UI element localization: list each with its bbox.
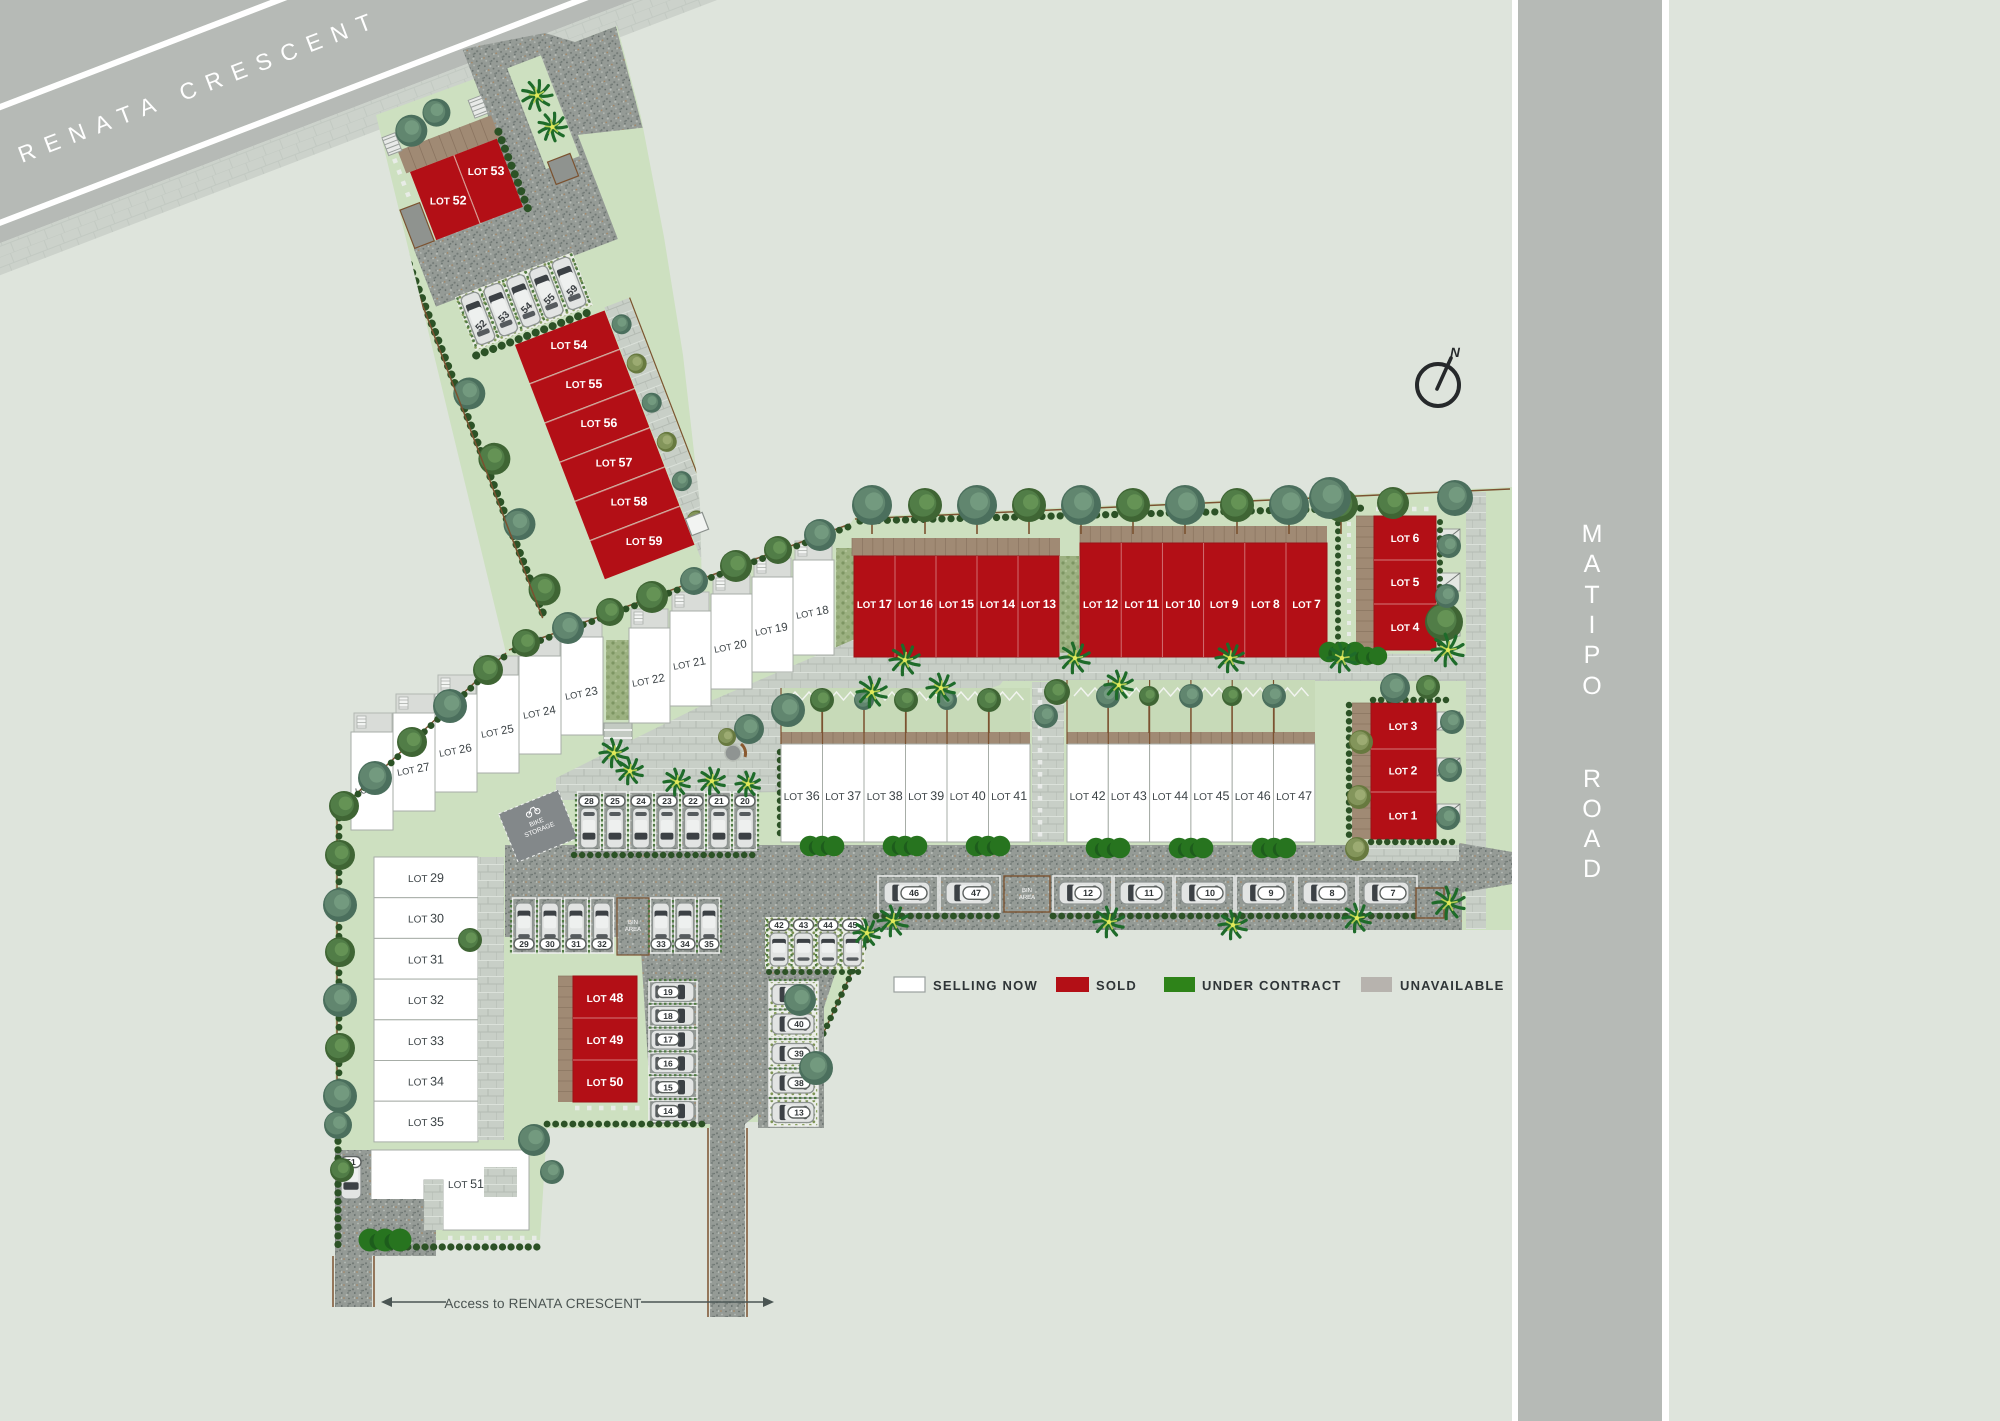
svg-text:LOT 46: LOT 46 <box>1235 789 1271 803</box>
svg-text:LOT 5: LOT 5 <box>1391 575 1420 589</box>
svg-text:LOT 32: LOT 32 <box>408 993 444 1007</box>
svg-text:19: 19 <box>663 987 673 997</box>
svg-text:21: 21 <box>714 796 724 806</box>
svg-text:LOT 54: LOT 54 <box>551 338 588 352</box>
svg-text:LOT 12: LOT 12 <box>1083 597 1119 611</box>
svg-text:T: T <box>1584 581 1599 609</box>
svg-text:33: 33 <box>656 939 666 949</box>
svg-text:LOT 13: LOT 13 <box>1021 597 1057 611</box>
svg-text:LOT 4: LOT 4 <box>1391 620 1420 634</box>
svg-text:38: 38 <box>794 1078 804 1088</box>
svg-text:M: M <box>1582 520 1603 548</box>
svg-text:LOT 38: LOT 38 <box>867 789 903 803</box>
svg-text:47: 47 <box>971 888 981 898</box>
svg-text:LOT 40: LOT 40 <box>950 789 986 803</box>
svg-text:12: 12 <box>1083 888 1093 898</box>
svg-text:D: D <box>1583 855 1601 883</box>
svg-text:31: 31 <box>571 939 581 949</box>
svg-text:LOT 2: LOT 2 <box>1389 764 1418 778</box>
svg-text:LOT 29: LOT 29 <box>408 871 444 885</box>
svg-text:LOT 3: LOT 3 <box>1389 719 1418 733</box>
svg-text:43: 43 <box>799 920 809 930</box>
svg-text:LOT 16: LOT 16 <box>898 597 934 611</box>
svg-text:16: 16 <box>663 1059 673 1069</box>
svg-text:LOT 11: LOT 11 <box>1125 597 1160 611</box>
svg-text:LOT 33: LOT 33 <box>408 1034 444 1048</box>
svg-text:LOT 53: LOT 53 <box>468 164 505 178</box>
svg-text:42: 42 <box>774 920 784 930</box>
svg-text:34: 34 <box>680 939 690 949</box>
svg-text:24: 24 <box>636 796 646 806</box>
svg-text:LOT 8: LOT 8 <box>1251 597 1280 611</box>
svg-text:25: 25 <box>610 796 620 806</box>
svg-text:30: 30 <box>545 939 555 949</box>
svg-text:LOT 42: LOT 42 <box>1070 789 1106 803</box>
svg-text:P: P <box>1584 641 1601 669</box>
svg-text:LOT 1: LOT 1 <box>1389 809 1418 823</box>
svg-text:BIN: BIN <box>1022 887 1032 894</box>
svg-text:13: 13 <box>794 1108 804 1118</box>
svg-text:9: 9 <box>1268 888 1273 898</box>
svg-text:8: 8 <box>1329 888 1334 898</box>
svg-text:LOT 49: LOT 49 <box>587 1033 624 1047</box>
svg-text:I: I <box>1589 611 1596 639</box>
svg-text:LOT 15: LOT 15 <box>939 597 975 611</box>
svg-text:22: 22 <box>688 796 698 806</box>
svg-text:LOT 47: LOT 47 <box>1276 789 1312 803</box>
svg-text:LOT 7: LOT 7 <box>1292 597 1321 611</box>
svg-text:35: 35 <box>704 939 714 949</box>
svg-text:UNDER CONTRACT: UNDER CONTRACT <box>1202 978 1342 993</box>
svg-text:LOT 9: LOT 9 <box>1210 597 1239 611</box>
svg-text:LOT 6: LOT 6 <box>1391 531 1420 545</box>
svg-text:46: 46 <box>909 888 919 898</box>
svg-text:44: 44 <box>823 920 833 930</box>
svg-text:7: 7 <box>1390 888 1395 898</box>
svg-text:LOT 48: LOT 48 <box>587 991 624 1005</box>
svg-text:32: 32 <box>597 939 607 949</box>
svg-text:LOT 58: LOT 58 <box>611 495 648 509</box>
svg-text:O: O <box>1582 672 1601 700</box>
svg-text:14: 14 <box>663 1106 673 1116</box>
svg-text:SELLING NOW: SELLING NOW <box>933 978 1038 993</box>
svg-text:BIN: BIN <box>628 919 638 926</box>
svg-text:29: 29 <box>519 939 529 949</box>
svg-text:LOT 52: LOT 52 <box>430 193 467 207</box>
svg-text:LOT 59: LOT 59 <box>626 534 663 548</box>
svg-text:10: 10 <box>1205 888 1215 898</box>
svg-text:20: 20 <box>740 796 750 806</box>
svg-text:O: O <box>1582 795 1601 823</box>
svg-text:LOT 41: LOT 41 <box>991 789 1027 803</box>
svg-text:R: R <box>1583 765 1601 793</box>
svg-text:LOT 45: LOT 45 <box>1194 789 1230 803</box>
svg-text:15: 15 <box>663 1082 673 1092</box>
svg-text:LOT 39: LOT 39 <box>908 789 944 803</box>
svg-text:SOLD: SOLD <box>1096 978 1137 993</box>
svg-text:28: 28 <box>584 796 594 806</box>
svg-text:39: 39 <box>794 1049 804 1059</box>
svg-text:LOT 56: LOT 56 <box>581 416 618 430</box>
svg-text:A: A <box>1584 550 1601 578</box>
svg-text:LOT 14: LOT 14 <box>980 597 1016 611</box>
svg-text:LOT 17: LOT 17 <box>857 597 893 611</box>
svg-text:40: 40 <box>794 1019 804 1029</box>
svg-text:LOT 10: LOT 10 <box>1165 597 1201 611</box>
svg-text:LOT 50: LOT 50 <box>587 1075 624 1089</box>
svg-text:17: 17 <box>663 1035 673 1045</box>
svg-text:18: 18 <box>663 1011 673 1021</box>
svg-text:LOT 36: LOT 36 <box>784 789 820 803</box>
svg-text:LOT 34: LOT 34 <box>408 1075 444 1089</box>
svg-text:LOT 30: LOT 30 <box>408 912 444 926</box>
svg-text:LOT 57: LOT 57 <box>596 455 633 469</box>
svg-text:LOT 37: LOT 37 <box>825 789 861 803</box>
svg-text:AREA: AREA <box>625 926 641 933</box>
svg-text:AREA: AREA <box>1019 894 1035 901</box>
svg-text:Access to RENATA CRESCENT: Access to RENATA CRESCENT <box>444 1296 641 1311</box>
svg-text:N: N <box>1450 345 1460 360</box>
svg-text:LOT 55: LOT 55 <box>566 377 603 391</box>
svg-text:LOT 35: LOT 35 <box>408 1115 444 1129</box>
svg-text:LOT 43: LOT 43 <box>1111 789 1147 803</box>
svg-text:11: 11 <box>1144 888 1154 898</box>
svg-text:LOT 51: LOT 51 <box>448 1177 484 1191</box>
svg-text:23: 23 <box>662 796 672 806</box>
svg-text:A: A <box>1584 825 1601 853</box>
svg-text:LOT 44: LOT 44 <box>1152 789 1188 803</box>
svg-text:UNAVAILABLE: UNAVAILABLE <box>1400 978 1504 993</box>
svg-text:LOT 31: LOT 31 <box>408 952 444 966</box>
